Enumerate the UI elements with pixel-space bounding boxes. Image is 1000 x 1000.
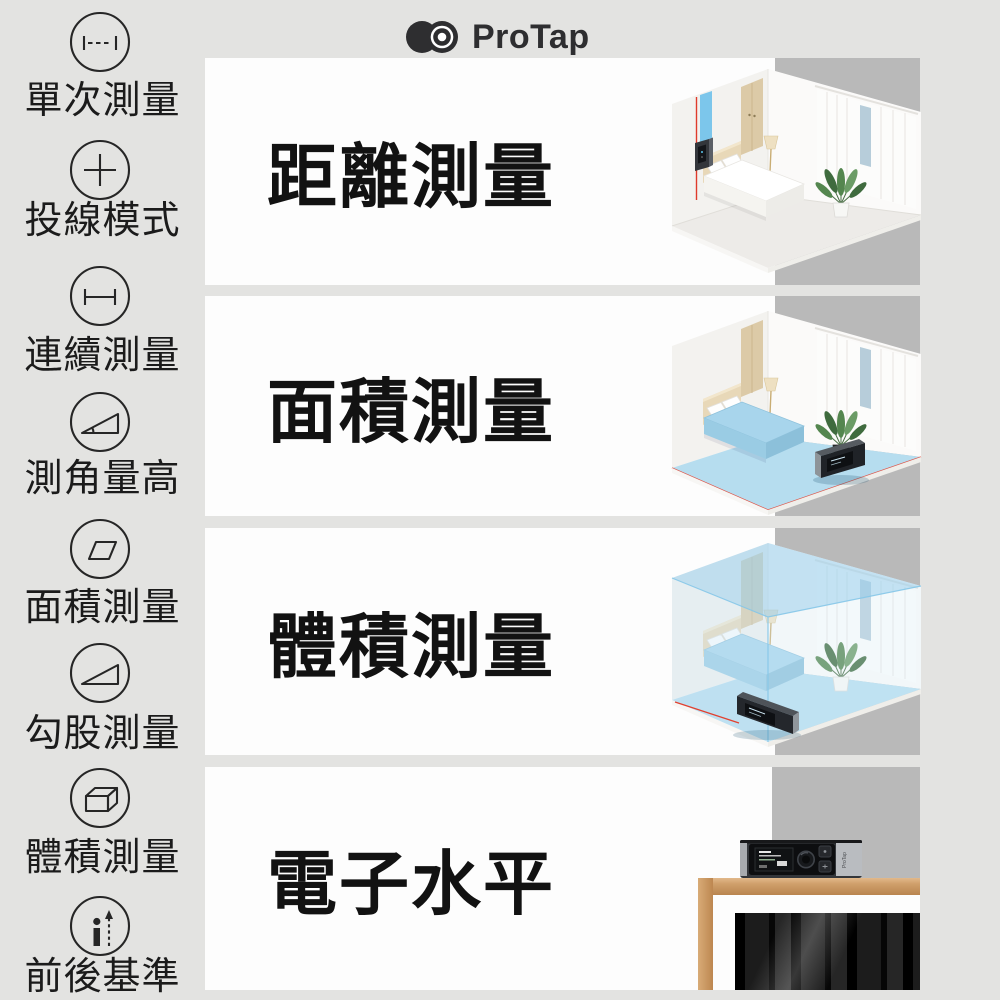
feature-row-area: 面積測量 — [0, 296, 1000, 516]
laser-device — [695, 138, 713, 172]
feature-title-distance: 距離測量 — [205, 121, 555, 222]
room-illustration-volume — [645, 538, 925, 748]
feature-title-level: 電子水平 — [205, 828, 555, 929]
brand-logo: ProTap — [405, 14, 590, 60]
feature-row-volume: 體積測量 — [0, 528, 1000, 755]
picture-frame-top — [698, 878, 920, 895]
room-illustration-area — [645, 306, 925, 516]
framed-artwork — [735, 913, 920, 990]
feature-title-volume: 體積測量 — [205, 591, 555, 692]
feature-row-level: 電子水平 ProTap — [0, 767, 1000, 990]
wardrobe — [741, 320, 763, 397]
picture-frame-side — [698, 878, 713, 990]
svg-text:ProTap: ProTap — [842, 852, 848, 868]
brand-name: ProTap — [472, 18, 590, 57]
laser-device-on-frame: ProTap — [740, 840, 862, 878]
room-illustration-distance — [645, 64, 925, 274]
feature-row-distance: 距離測量 — [0, 58, 1000, 285]
page: ProTap 單次測量 投線模式 連續測量 測角量高 — [0, 0, 1000, 1000]
feature-panel: 電子水平 — [205, 767, 775, 990]
feature-title-area: 面積測量 — [205, 356, 555, 457]
wardrobe — [741, 78, 763, 155]
protap-logo-icon — [405, 14, 463, 60]
